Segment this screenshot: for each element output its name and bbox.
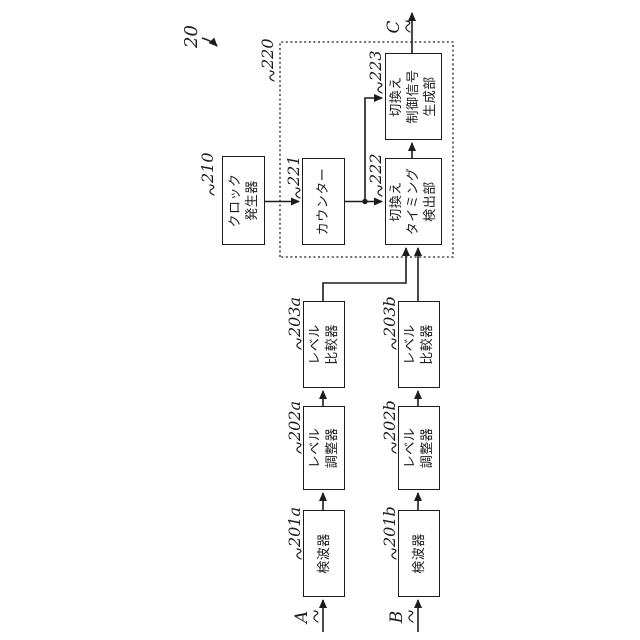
block-222-switch-timing-detector: 切換え タイミング 検出部 [385, 158, 442, 245]
leader-tilde-icon [268, 70, 276, 82]
leader-tilde-icon [390, 442, 398, 454]
leader-tilde-icon [295, 338, 303, 350]
patent-figure-canvas: クロック 発生器 カウンター 切換え タイミング 検出部 切換え 制御信号 生成… [0, 0, 640, 640]
block-label: 切換え タイミング 検出部 [388, 168, 439, 236]
figure-ref-arrow [202, 38, 217, 46]
ref-label-221: 221 [284, 155, 303, 199]
leader-tilde-icon [295, 442, 303, 454]
rotated-diagram: クロック 発生器 カウンター 切換え タイミング 検出部 切換え 制御信号 生成… [0, 0, 640, 640]
block-label: レベル 調整器 [402, 428, 436, 469]
leader-tilde-icon [376, 185, 384, 197]
block-210-clock-generator: クロック 発生器 [222, 156, 265, 245]
leader-tilde-icon [295, 548, 303, 560]
leader-tilde-icon [407, 611, 415, 624]
input-b-label: B [389, 605, 415, 629]
block-label: レベル 比較器 [402, 324, 436, 365]
block-201b-detector: 検波器 [398, 510, 440, 597]
block-202a-level-adjuster: レベル 調整器 [303, 406, 345, 490]
ref-label-223: 223 [366, 50, 385, 94]
block-label: 検波器 [411, 533, 428, 574]
leader-tilde-icon [376, 82, 384, 94]
ref-label-201a: 201a [285, 507, 304, 560]
block-label: 切換え 制御信号 生成部 [388, 70, 439, 124]
ref-label-210: 210 [198, 152, 217, 196]
leader-tilde-icon [312, 611, 320, 624]
ref-label-201b: 201b [380, 506, 399, 560]
leader-tilde-icon [390, 548, 398, 560]
ref-label-202a: 202a [285, 401, 304, 454]
leader-tilde-icon [294, 187, 302, 199]
block-label: 検波器 [316, 533, 333, 574]
wire-cmp-a-to-timing [323, 248, 406, 303]
block-label: レベル 比較器 [307, 324, 341, 365]
junction-dot [362, 199, 367, 204]
block-label: カウンター [315, 168, 332, 236]
ref-label-203b: 203b [380, 296, 399, 350]
block-201a-detector: 検波器 [303, 510, 345, 597]
output-c-label: C [386, 15, 412, 39]
ref-label-220: 220 [258, 38, 277, 82]
ref-label-202b: 202b [380, 400, 399, 454]
leader-tilde-icon [404, 21, 412, 34]
block-221-counter: カウンター [302, 158, 345, 245]
figure-ref-20: 20 [181, 25, 202, 48]
block-label: レベル 調整器 [307, 428, 341, 469]
ref-label-222: 222 [366, 153, 385, 197]
block-223-switch-control-signal-generator: 切換え 制御信号 生成部 [385, 53, 442, 140]
block-label: クロック 発生器 [227, 174, 261, 228]
ref-label-203a: 203a [285, 297, 304, 350]
block-202b-level-adjuster: レベル 調整器 [398, 406, 440, 490]
block-203a-level-comparator: レベル 比較器 [303, 301, 345, 388]
input-a-label: A [294, 605, 320, 629]
leader-tilde-icon [390, 338, 398, 350]
block-203b-level-comparator: レベル 比較器 [398, 301, 440, 388]
leader-tilde-icon [208, 184, 216, 196]
